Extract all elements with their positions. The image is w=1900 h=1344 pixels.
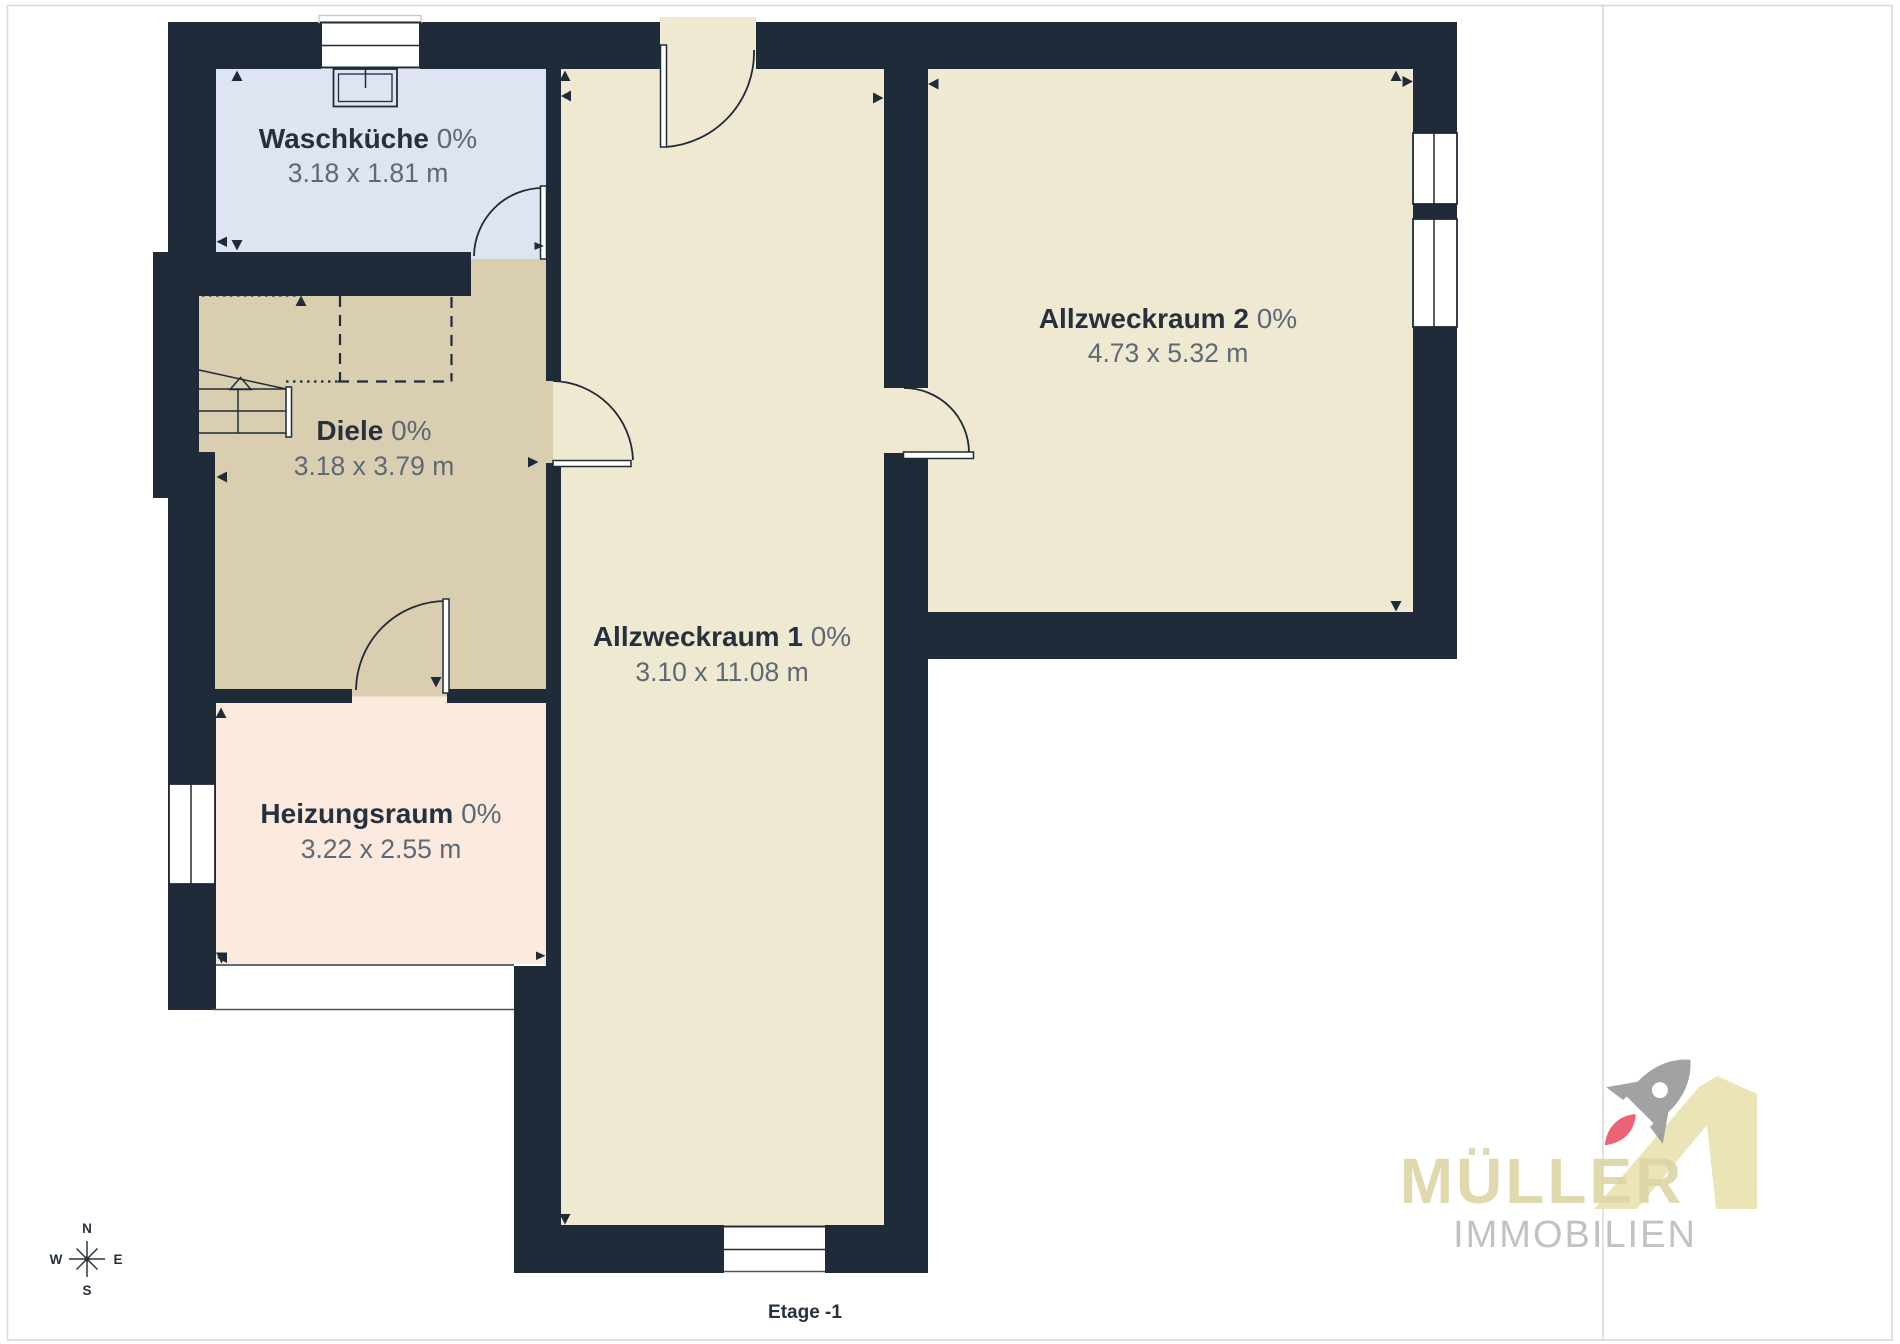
svg-text:Diele 0%: Diele 0% bbox=[316, 415, 431, 446]
svg-text:3.10 x 11.08 m: 3.10 x 11.08 m bbox=[635, 657, 808, 687]
svg-text:IMMOBILIEN: IMMOBILIEN bbox=[1453, 1214, 1697, 1256]
svg-text:Allzweckraum 1 0%: Allzweckraum 1 0% bbox=[593, 621, 851, 652]
svg-text:MÜLLER: MÜLLER bbox=[1400, 1145, 1685, 1217]
svg-text:3.18 x 3.79 m: 3.18 x 3.79 m bbox=[294, 451, 455, 481]
svg-text:3.22 x 2.55 m: 3.22 x 2.55 m bbox=[301, 834, 462, 864]
svg-text:E: E bbox=[113, 1252, 122, 1267]
svg-text:W: W bbox=[50, 1252, 63, 1267]
svg-text:Heizungsraum 0%: Heizungsraum 0% bbox=[260, 798, 501, 829]
svg-text:Etage -1: Etage -1 bbox=[768, 1302, 842, 1323]
svg-text:S: S bbox=[82, 1283, 91, 1298]
svg-text:N: N bbox=[82, 1221, 92, 1236]
svg-text:3.18 x 1.81 m: 3.18 x 1.81 m bbox=[288, 158, 449, 188]
svg-text:Allzweckraum 2 0%: Allzweckraum 2 0% bbox=[1039, 303, 1297, 334]
svg-text:Waschküche 0%: Waschküche 0% bbox=[259, 123, 477, 154]
svg-text:4.73 x 5.32 m: 4.73 x 5.32 m bbox=[1088, 338, 1249, 368]
